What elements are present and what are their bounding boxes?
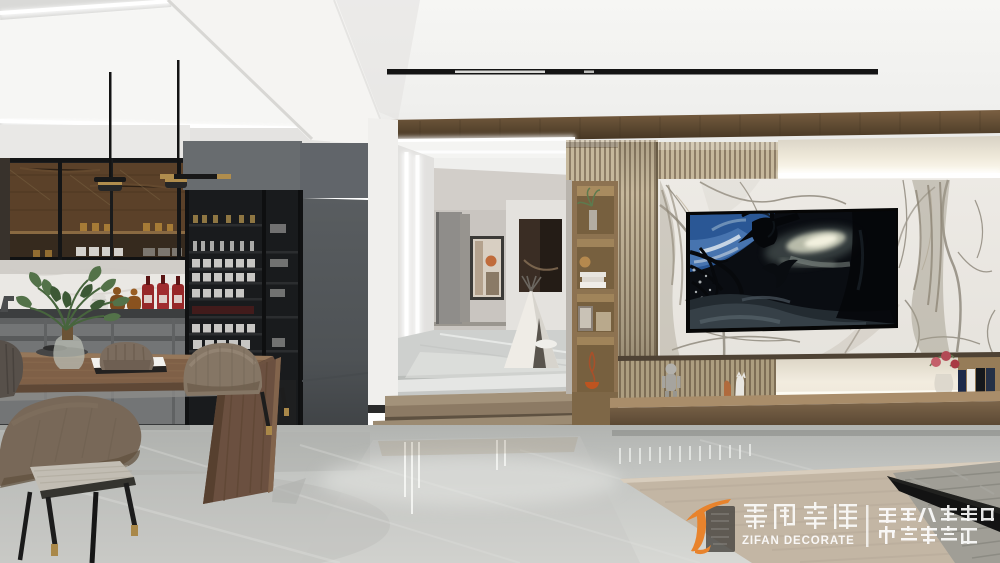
svg-text:ZIFAN DECORATE: ZIFAN DECORATE <box>742 535 855 547</box>
